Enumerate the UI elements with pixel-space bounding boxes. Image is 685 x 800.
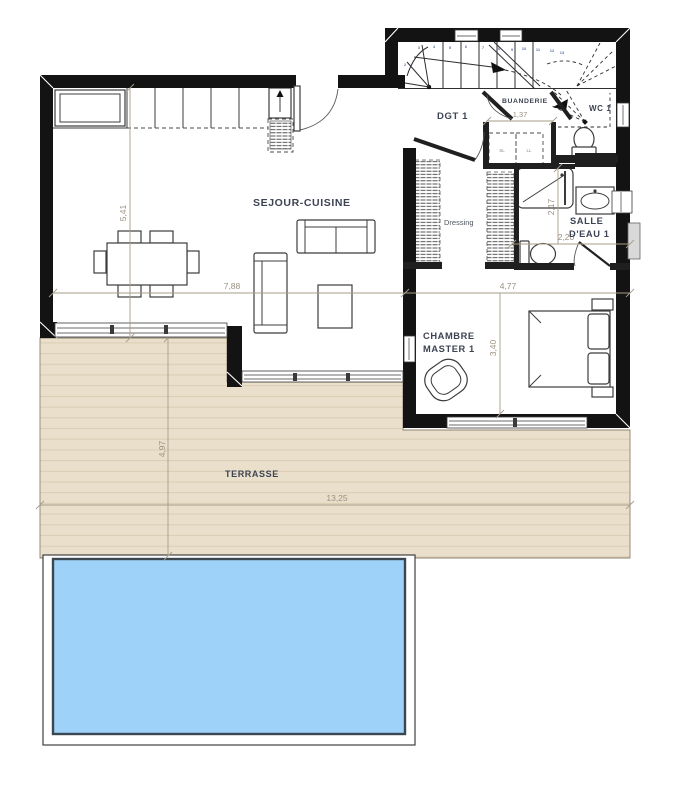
dining-set: [94, 231, 199, 297]
dim-salle-eau-height: 2,17: [546, 198, 556, 215]
wall: [485, 262, 516, 269]
wall: [512, 164, 575, 169]
window: [455, 30, 478, 41]
pool: [43, 555, 415, 745]
wall: [514, 166, 519, 268]
sink-cabinet: [55, 90, 125, 126]
wardrobe: [487, 172, 514, 266]
room-label-buanderie: BUANDERIE: [502, 98, 548, 105]
stair-step-number: 10: [522, 46, 527, 51]
shower: [517, 168, 573, 208]
pillow: [588, 314, 609, 349]
oven: [268, 119, 293, 152]
dressing-closets: [415, 160, 514, 266]
window: [242, 371, 403, 382]
stair-step-number: 7: [482, 45, 485, 50]
stair-step-number: 11: [536, 47, 541, 52]
wall: [40, 75, 296, 88]
wall: [227, 326, 242, 387]
window: [500, 30, 522, 41]
window: [447, 417, 587, 428]
chair: [187, 251, 199, 273]
stair-step-number: 13: [560, 50, 565, 55]
washbasin: [576, 187, 614, 214]
dim-terrasse-width: 13,25: [326, 493, 348, 503]
fridge: [269, 88, 291, 118]
living-set: [254, 220, 375, 333]
room-label-dressing: Dressing: [444, 218, 474, 227]
stair-step-number: 4: [433, 44, 436, 49]
room-label-terrasse: TERRASSE: [225, 469, 279, 479]
dim-sejour-height: 5,41: [118, 204, 128, 221]
nightstand: [592, 299, 613, 310]
sofa: [297, 220, 375, 253]
room-label-wc: WC 1: [589, 104, 611, 113]
stair-step-number: 9: [511, 47, 514, 52]
entry-door: [294, 86, 338, 131]
wall: [514, 263, 574, 270]
chair: [150, 231, 173, 243]
washer-dryer: SL LL: [489, 133, 543, 165]
chair: [118, 285, 141, 297]
dim-chambre-height: 3,40: [488, 339, 498, 356]
wall: [414, 139, 475, 160]
dim-chambre-width: 4,77: [500, 281, 517, 291]
stair-step-number: 3: [418, 45, 421, 50]
wall: [551, 92, 571, 119]
wardrobe: [415, 160, 440, 266]
room-label-chambre-2: MASTER 1: [423, 344, 475, 354]
dim-buanderie-width: 1,37: [513, 110, 528, 119]
window: [404, 336, 415, 362]
chair: [150, 285, 173, 297]
nightstand: [592, 387, 613, 397]
room-label-sejour-cuisine: SEJOUR-CUISINE: [253, 197, 351, 209]
dryer-label: LL: [526, 148, 532, 153]
floor-plan: 4,97 13,25: [0, 0, 685, 800]
stair-step-number: 5: [449, 45, 452, 50]
floor-plan-canvas: 4,97 13,25: [0, 0, 685, 800]
room-label-salle-eau-2: D'EAU 1: [569, 229, 610, 239]
wall: [385, 42, 398, 75]
wall: [338, 75, 405, 88]
wall: [551, 122, 556, 163]
dim-terrasse-height: 4,97: [157, 440, 167, 457]
armchair: [419, 354, 472, 406]
room-label-salle-eau-1: SALLE: [570, 216, 603, 226]
pool-water: [53, 559, 405, 734]
dining-table: [107, 243, 187, 285]
wall: [403, 262, 442, 269]
coffee-table: [318, 285, 352, 328]
stair-treads: [398, 42, 617, 89]
wall: [483, 122, 489, 168]
bathroom-door: [574, 242, 610, 266]
wall: [403, 148, 416, 428]
room-label-chambre-1: CHAMBRE: [423, 331, 475, 341]
wall: [610, 263, 630, 270]
pillow: [588, 353, 609, 384]
toilet: [572, 128, 596, 157]
stair-step-number: 12: [550, 48, 555, 53]
dim-sejour-width: 7,88: [224, 281, 241, 291]
room-label-dgt: DGT 1: [437, 111, 468, 122]
kitchen-counter: [53, 88, 295, 152]
chair: [118, 231, 141, 243]
washer-label: SL: [499, 148, 505, 153]
chair: [94, 251, 106, 273]
window-shutter-box: [628, 223, 640, 259]
window: [55, 323, 227, 337]
door-leaf: [294, 86, 300, 131]
window: [617, 103, 629, 127]
dressing-door: [475, 132, 484, 160]
wall: [40, 88, 53, 322]
wall: [575, 153, 616, 167]
stair-step-number: 6: [465, 44, 468, 49]
stair-step-number: 2: [404, 62, 407, 67]
